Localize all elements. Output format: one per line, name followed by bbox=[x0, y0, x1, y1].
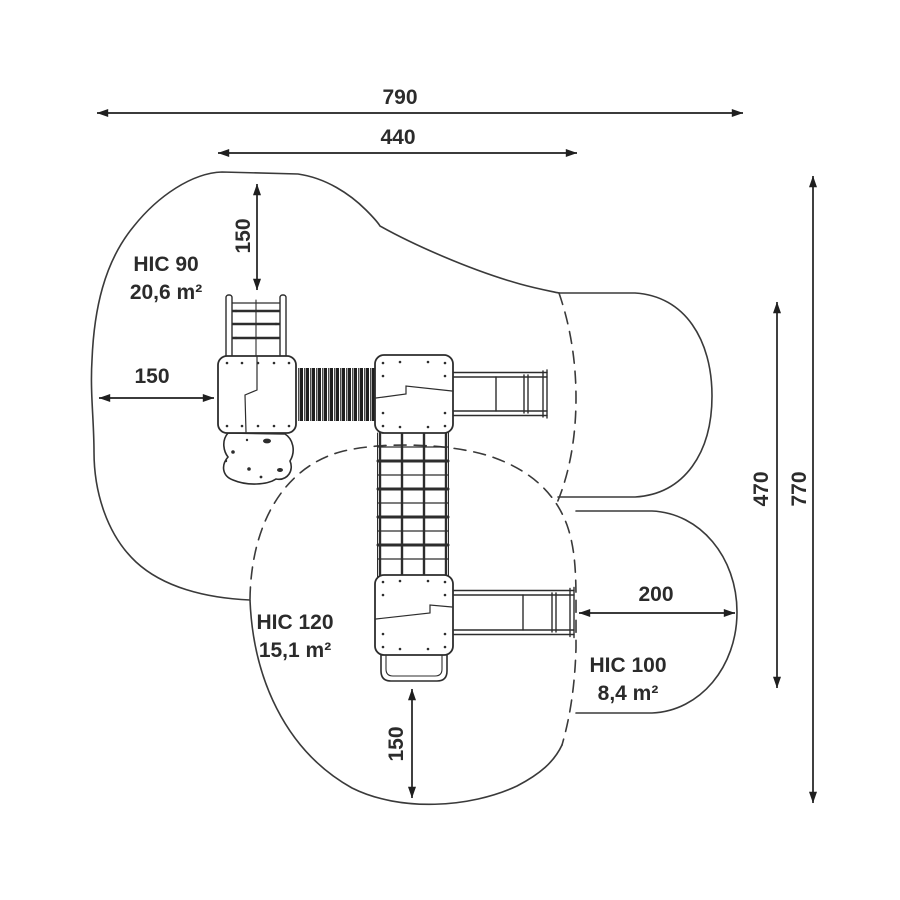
zone-hic120-area: 15,1 m² bbox=[235, 637, 355, 665]
tower-2 bbox=[375, 355, 453, 433]
zone-hic100-name: HIC 100 bbox=[568, 652, 688, 680]
plan-drawing bbox=[0, 0, 900, 900]
hic90-hidden-boundary bbox=[557, 293, 576, 503]
zone-hic100-label: HIC 100 8,4 m² bbox=[568, 652, 688, 708]
dimension-lines bbox=[97, 113, 813, 803]
lower-slide bbox=[453, 588, 574, 638]
dim-overall-width-label: 790 bbox=[360, 86, 440, 110]
crawl-tunnel bbox=[297, 368, 376, 421]
dim-bottom-margin-label: 150 bbox=[385, 714, 409, 774]
zone-hic120-label: HIC 120 15,1 m² bbox=[235, 609, 355, 665]
dim-slide-runout-label: 200 bbox=[617, 583, 695, 607]
zone-hic90-name: HIC 90 bbox=[106, 251, 226, 279]
rock-climb-element bbox=[224, 433, 294, 484]
climbing-net bbox=[378, 433, 449, 577]
dim-platform-width-label: 440 bbox=[358, 126, 438, 150]
tower-1 bbox=[218, 356, 296, 433]
tower-3 bbox=[375, 575, 453, 655]
zone-hic90-area: 20,6 m² bbox=[106, 279, 226, 307]
zone-hic100-area: 8,4 m² bbox=[568, 680, 688, 708]
zone-hic90-label: HIC 90 20,6 m² bbox=[106, 251, 226, 307]
entry-step bbox=[381, 654, 447, 681]
dim-overall-height-label: 770 bbox=[788, 459, 812, 519]
upper-slide bbox=[453, 370, 547, 418]
access-ladder bbox=[226, 295, 286, 358]
dim-right-inner-height-label: 470 bbox=[750, 459, 774, 519]
dim-left-margin-label: 150 bbox=[114, 365, 190, 389]
safety-zone-plan: 790 440 150 150 200 470 770 150 HIC 90 2… bbox=[0, 0, 900, 900]
upper-slide-exit-zone-outline bbox=[558, 293, 712, 497]
dim-top-margin-label: 150 bbox=[232, 206, 256, 266]
zone-hic120-name: HIC 120 bbox=[235, 609, 355, 637]
